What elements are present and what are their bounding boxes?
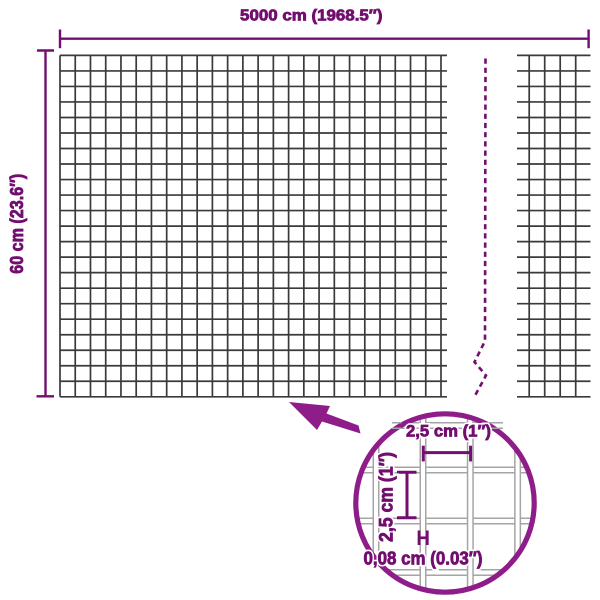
svg-text:2,5 cm (1″): 2,5 cm (1″) (406, 421, 491, 440)
svg-text:60 cm (23.6″): 60 cm (23.6″) (7, 174, 27, 274)
svg-text:5000 cm (1968.5″): 5000 cm (1968.5″) (240, 7, 383, 24)
svg-text:0,08 cm (0.03″): 0,08 cm (0.03″) (364, 548, 483, 569)
svg-text:2,5 cm (1″): 2,5 cm (1″) (377, 452, 398, 542)
